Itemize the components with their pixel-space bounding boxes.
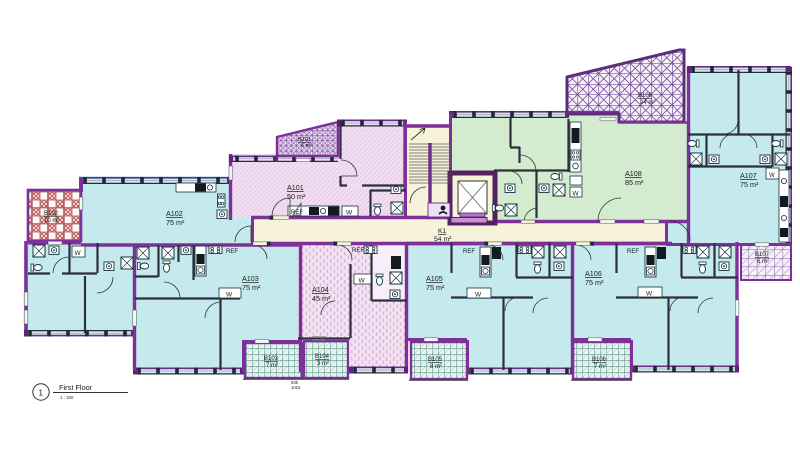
svg-text:1015: 1015 <box>291 385 301 390</box>
svg-text:W: W <box>646 291 653 298</box>
svg-text:A101: A101 <box>287 183 304 192</box>
svg-text:7 m²: 7 m² <box>266 363 278 369</box>
svg-text:B103: B103 <box>264 356 279 362</box>
svg-text:REF: REF <box>352 248 364 254</box>
svg-text:W: W <box>359 278 366 285</box>
svg-text:A103: A103 <box>242 274 259 283</box>
svg-text:REF: REF <box>226 249 238 255</box>
svg-text:6 m²: 6 m² <box>301 143 312 149</box>
svg-text:75 m²: 75 m² <box>242 283 261 292</box>
svg-text:50 m²: 50 m² <box>287 192 306 201</box>
svg-text:1 : 100: 1 : 100 <box>60 395 74 400</box>
svg-text:3 m²: 3 m² <box>317 361 329 367</box>
svg-text:75 m²: 75 m² <box>585 278 604 287</box>
svg-text:W: W <box>475 292 482 299</box>
svg-text:6 m²: 6 m² <box>757 259 769 265</box>
svg-text:B106: B106 <box>592 357 607 363</box>
svg-text:B105: B105 <box>428 357 443 363</box>
svg-text:B108: B108 <box>638 93 653 99</box>
svg-text:75 m²: 75 m² <box>426 283 445 292</box>
svg-text:10 m²: 10 m² <box>44 218 59 224</box>
svg-text:W: W <box>769 173 775 179</box>
svg-text:W: W <box>346 210 353 217</box>
svg-text:75 m²: 75 m² <box>740 180 759 189</box>
svg-text:B107: B107 <box>755 252 770 258</box>
svg-text:A106: A106 <box>585 269 602 278</box>
svg-text:First Floor: First Floor <box>59 383 93 392</box>
svg-text:85 m²: 85 m² <box>625 178 644 187</box>
svg-text:A107: A107 <box>740 171 757 180</box>
svg-text:B104: B104 <box>315 354 330 360</box>
svg-text:W: W <box>75 250 82 257</box>
svg-text:A105: A105 <box>426 274 443 283</box>
svg-text:B102: B102 <box>44 211 59 217</box>
svg-text:1: 1 <box>39 389 44 398</box>
svg-text:75 m²: 75 m² <box>166 218 185 227</box>
svg-text:A108: A108 <box>625 169 642 178</box>
svg-text:7 m²: 7 m² <box>594 364 606 370</box>
svg-text:A104: A104 <box>312 285 329 294</box>
svg-text:REF: REF <box>627 249 639 255</box>
svg-text:REF: REF <box>463 249 475 255</box>
svg-text:K1: K1 <box>438 228 447 235</box>
svg-text:A102: A102 <box>166 209 183 218</box>
svg-text:24 m²: 24 m² <box>640 100 655 106</box>
svg-text:W: W <box>226 292 233 299</box>
svg-text:45 m²: 45 m² <box>312 294 331 303</box>
svg-text:54 m²: 54 m² <box>434 236 452 243</box>
svg-text:8 m²: 8 m² <box>430 364 442 370</box>
svg-text:W: W <box>573 191 580 198</box>
